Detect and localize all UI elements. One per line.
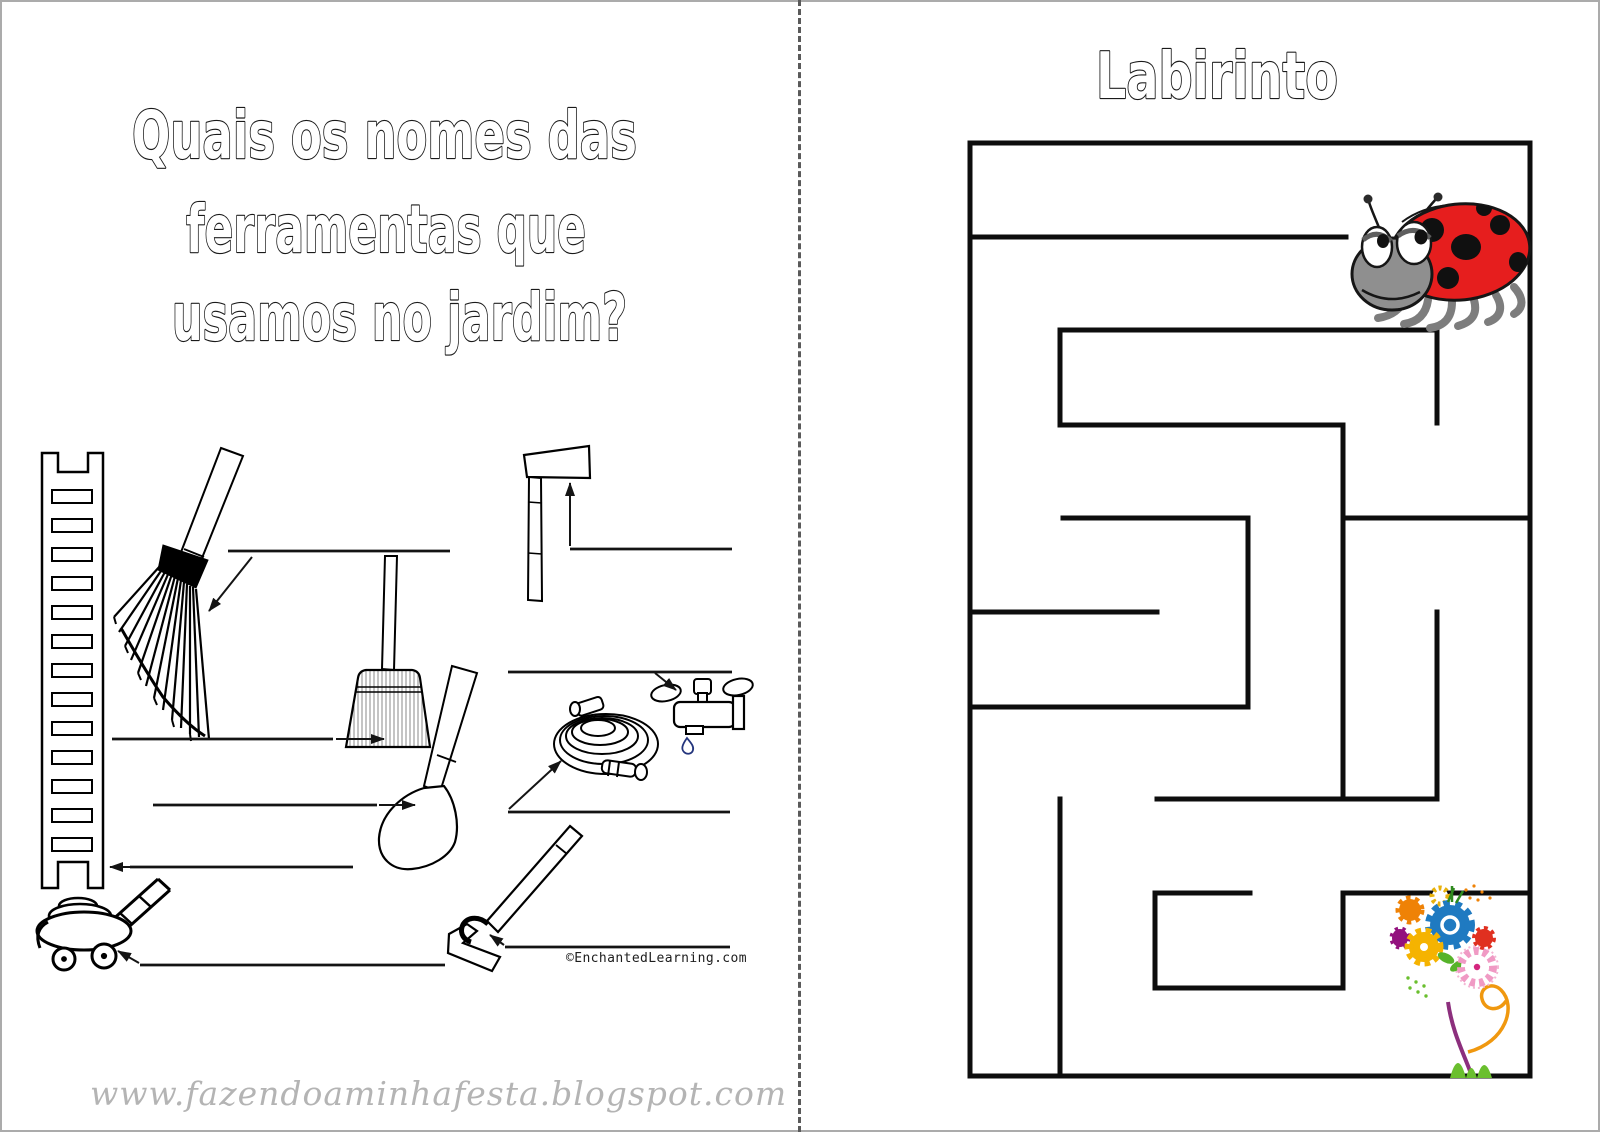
ladder-icon: [42, 453, 103, 888]
water-drop-icon: [682, 738, 693, 754]
broom-icon: [346, 556, 430, 747]
answer-arrow-mower: [118, 951, 139, 963]
maze-title: Labirinto: [1096, 40, 1338, 114]
title-line-1: Quais os nomes das: [132, 97, 637, 174]
answer-arrow-hoe: [490, 935, 504, 945]
title-line-2: ferramentas que: [186, 191, 586, 268]
faucet-icon: [650, 676, 755, 754]
hoe-icon: [448, 826, 582, 971]
ladybug-start-icon: [1352, 193, 1535, 329]
rake-icon: [114, 448, 243, 741]
credit-text: ©EnchantedLearning.com: [566, 951, 866, 966]
lawn-mower-icon: [37, 879, 170, 970]
grass-icon: [1450, 1063, 1492, 1078]
garden-hose-icon: [554, 696, 658, 780]
answer-arrow-hose: [509, 761, 561, 809]
swirl-leaf-icon: [1468, 986, 1508, 1052]
watermark-text: www.fazendoaminhafesta.blogspot.com: [90, 1074, 650, 1113]
title-line-3: usamos no jardim?: [172, 279, 627, 356]
halftone-dots: [1406, 976, 1427, 997]
flower-bouquet-goal-icon: [1392, 884, 1508, 1078]
worksheet-page: Quais os nomes das ferramentas que usamo…: [0, 0, 1600, 1132]
worksheet-title: Quais os nomes das ferramentas que usamo…: [132, 97, 637, 356]
axe-icon: [524, 446, 590, 601]
answer-arrow-rake: [209, 557, 252, 611]
